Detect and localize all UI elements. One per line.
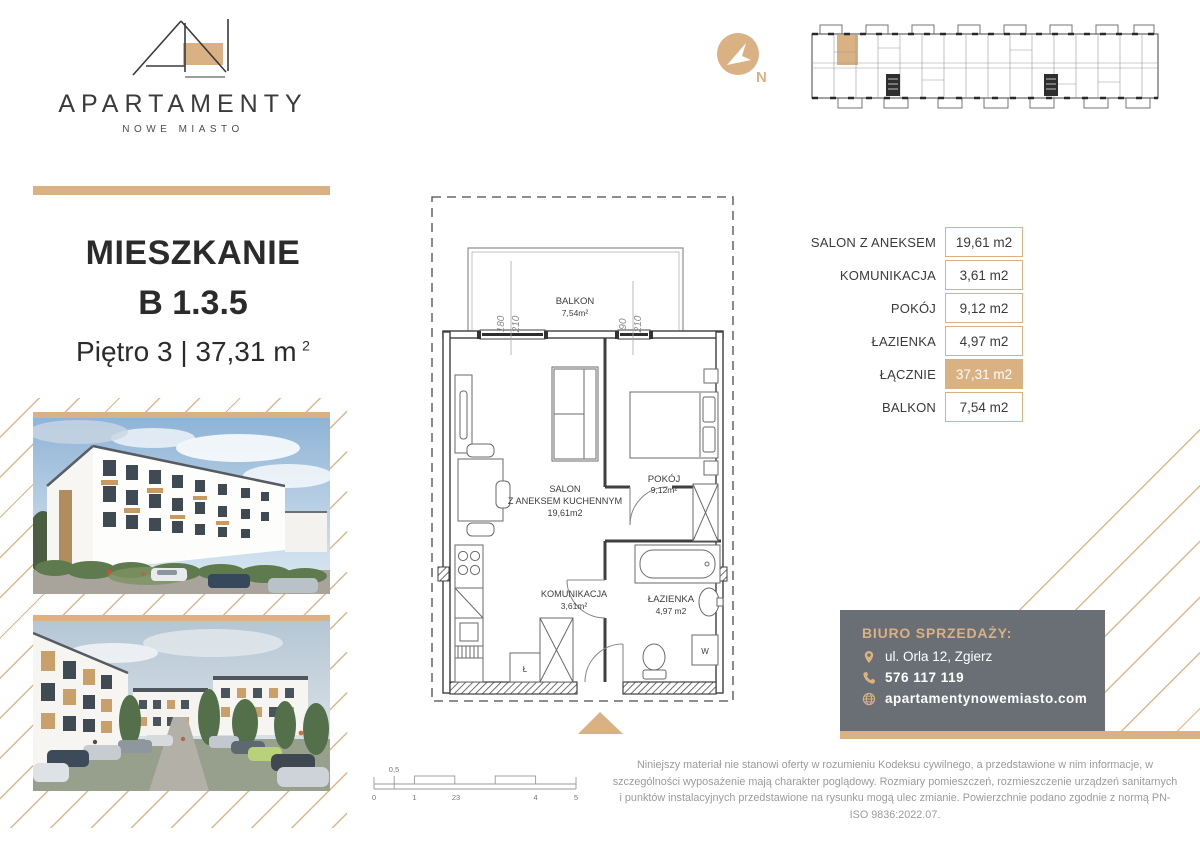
apartment-label: MIESZKANIE: [28, 234, 358, 273]
row-value-box: 19,61 m2: [945, 227, 1023, 257]
dim-90: 90: [618, 318, 629, 330]
nightstand-2: [704, 461, 718, 475]
phone-icon: [862, 671, 876, 685]
brand-logo-monogram: [130, 15, 235, 85]
scale-label-0: 0: [372, 793, 376, 802]
building-level-overview: [808, 22, 1164, 114]
toilet: [643, 644, 665, 670]
gold-divider-bar: [33, 186, 330, 195]
scale-label-5: 5: [574, 793, 578, 802]
washer-label: W: [701, 647, 709, 656]
apartment-floor-area: Piętro 3 | 37,31 m 2: [28, 336, 358, 368]
row-value: 9,12 m2: [960, 301, 1009, 316]
sales-phone-row[interactable]: 576 117 119: [862, 670, 1105, 685]
stove: [455, 545, 483, 588]
sales-website-row[interactable]: apartamentynowemiasto.com: [862, 691, 1105, 706]
row-label: POKÓJ: [795, 301, 945, 316]
pillow-1: [703, 397, 715, 422]
lazienka-label: ŁAZIENKA: [648, 594, 695, 605]
floorplan: 180 210 90 210: [424, 193, 736, 749]
komunikacja-label: KOMUNIKACJA: [541, 589, 608, 599]
balkon-area: 7,54m²: [562, 308, 589, 318]
dim-210a: 210: [511, 315, 522, 333]
brand-title: APARTAMENTY: [33, 90, 333, 119]
floor-area-text: Piętro 3 | 37,31 m: [76, 336, 297, 367]
kitchen-rack: [455, 646, 483, 658]
kitchen-base: [455, 658, 483, 682]
lazienka-area: 4,97 m2: [656, 606, 687, 616]
salon-label-1: SALON: [549, 484, 580, 494]
row-label: ŁĄCZNIE: [795, 367, 945, 382]
row-value: 7,54 m2: [960, 400, 1009, 415]
compass-icon: N: [714, 28, 778, 92]
row-label: SALON Z ANEKSEM: [795, 235, 945, 250]
pokoj-label: POKÓJ: [648, 474, 681, 485]
row-label: KOMUNIKACJA: [795, 268, 945, 283]
location-pin-icon: [862, 650, 876, 664]
scale-bar: 0,5 0 1 23 4 5: [366, 762, 588, 807]
sales-address-row: ul. Orla 12, Zgierz: [862, 649, 1105, 664]
legal-disclaimer: Niniejszy materiał nie stanowi oferty w …: [612, 757, 1178, 824]
nightstand-1: [704, 369, 718, 383]
entrance-triangle-marker: [578, 712, 623, 734]
highlighted-unit: [837, 35, 858, 65]
apartment-number: B 1.3.5: [28, 284, 358, 323]
table-row: SALON Z ANEKSEM 19,61 m2: [795, 227, 1023, 257]
salon-label-2: Z ANEKSEM KUCHENNYM: [508, 496, 622, 506]
fridge-label: Ł: [523, 665, 528, 674]
pokoj-area: 9,12m²: [651, 485, 678, 495]
sales-phone[interactable]: 576 117 119: [885, 670, 964, 685]
brand-subtitle: NOWE MIASTO: [33, 124, 333, 135]
balkon-label: BALKON: [556, 296, 595, 307]
tv: [460, 391, 467, 439]
row-value-box: 4,97 m2: [945, 326, 1023, 356]
scale-label-1: 1: [412, 793, 416, 802]
compass-north-label: N: [756, 69, 767, 86]
sales-website[interactable]: apartamentynowemiasto.com: [885, 691, 1087, 706]
sales-office-box: BIURO SPRZEDAŻY: ul. Orla 12, Zgierz 576…: [840, 610, 1105, 731]
apartment-title-block: MIESZKANIE B 1.3.5 Piętro 3 | 37,31 m 2: [28, 234, 358, 368]
sales-box-gold-bar: [840, 731, 1200, 739]
row-value: 37,31 m2: [956, 367, 1012, 382]
table-row-total: ŁĄCZNIE 37,31 m2: [795, 359, 1023, 389]
stair-core-2: [1044, 74, 1058, 96]
room-labels: BALKON 7,54m² SALON Z ANEKSEM KUCHENNYM …: [508, 296, 709, 674]
furniture: [455, 367, 723, 682]
row-label: ŁAZIENKA: [795, 334, 945, 349]
table-row: BALKON 7,54 m2: [795, 392, 1023, 422]
komunikacja-area: 3,61m²: [561, 601, 588, 611]
scale-label-23: 23: [452, 793, 460, 802]
chair-top: [467, 444, 494, 457]
dim-210b: 210: [633, 315, 644, 333]
kitchen-sink-cab: [455, 618, 483, 646]
chair-bottom: [467, 523, 494, 536]
scale-label-4: 4: [534, 793, 538, 802]
sales-address: ul. Orla 12, Zgierz: [885, 649, 992, 664]
row-value: 3,61 m2: [960, 268, 1009, 283]
row-value-box: 7,54 m2: [945, 392, 1023, 422]
row-value: 19,61 m2: [956, 235, 1012, 250]
sales-office-heading: BIURO SPRZEDAŻY:: [862, 625, 1105, 641]
brochure-page: APARTAMENTY NOWE MIASTO MIESZKANIE B 1.3…: [0, 0, 1200, 849]
row-value-box-total: 37,31 m2: [945, 359, 1023, 389]
photo-building-exterior: [33, 418, 330, 594]
table-row: KOMUNIKACJA 3,61 m2: [795, 260, 1023, 290]
stair-core-1: [886, 74, 900, 96]
dim-180: 180: [496, 315, 507, 332]
row-label: BALKON: [795, 400, 945, 415]
area-table: SALON Z ANEKSEM 19,61 m2 KOMUNIKACJA 3,6…: [795, 227, 1023, 425]
row-value-box: 9,12 m2: [945, 293, 1023, 323]
globe-icon: [862, 692, 876, 706]
pillow-2: [703, 427, 715, 452]
table-row: POKÓJ 9,12 m2: [795, 293, 1023, 323]
row-value-box: 3,61 m2: [945, 260, 1023, 290]
photo-courtyard: [33, 621, 330, 791]
salon-area: 19,61m2: [547, 508, 582, 518]
row-value: 4,97 m2: [960, 334, 1009, 349]
scale-label-05: 0,5: [389, 765, 399, 774]
sink: [699, 588, 719, 616]
floor-area-sup: 2: [302, 338, 310, 354]
table-row: ŁAZIENKA 4,97 m2: [795, 326, 1023, 356]
